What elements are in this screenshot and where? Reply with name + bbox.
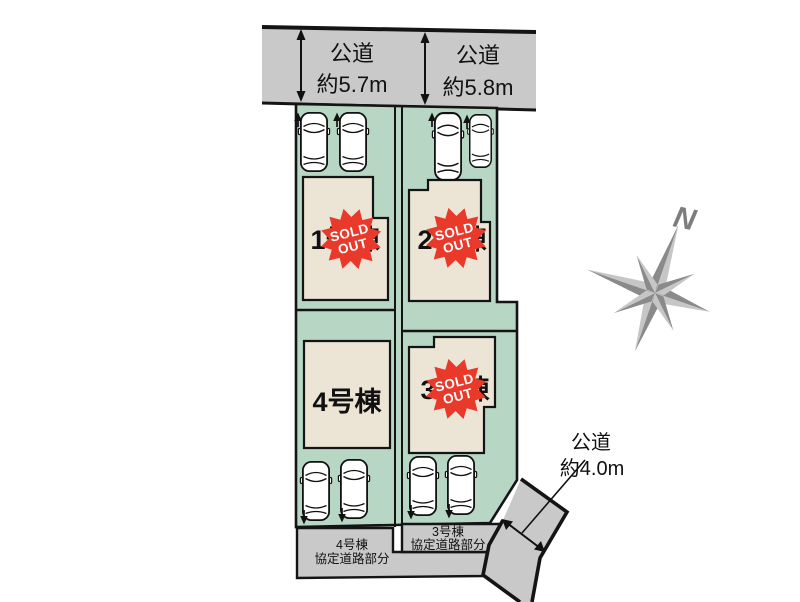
car-icon [445,456,476,514]
agreement-lot3-line1: 3号棟 [432,524,464,539]
car-icon [298,113,329,171]
top-road: 公道 約5.7m 公道 約5.8m [262,27,536,110]
lot4-label: 4号棟 [312,387,382,417]
car-icon [337,113,368,171]
top-road-right-name: 公道 [456,43,500,68]
bottom-road-width: 約4.0m [560,457,624,480]
agreement-lot4-line1: 4号棟 [336,537,368,552]
top-road-right-width: 約5.8m [443,75,514,100]
car-icon [338,460,369,518]
car-icon [432,113,463,180]
car-icon [468,115,494,167]
compass-rose [567,201,734,370]
compass-north-label: N [671,201,700,238]
top-road-left-width: 約5.7m [317,72,388,97]
bottom-road-name: 公道 [571,431,611,454]
agreement-lot3-line2: 協定道路部分 [410,537,485,552]
car-icon [300,462,331,520]
agreement-lot4-line2: 協定道路部分 [314,551,389,566]
car-icon [407,457,438,515]
site-plan-page: 公道 約5.7m 公道 約5.8m 1号棟 2号棟 3号棟 4号棟 SOLD O… [0,0,800,602]
site-plan-svg: 公道 約5.7m 公道 約5.8m 1号棟 2号棟 3号棟 4号棟 SOLD O… [0,0,800,602]
top-road-left-name: 公道 [330,41,374,66]
